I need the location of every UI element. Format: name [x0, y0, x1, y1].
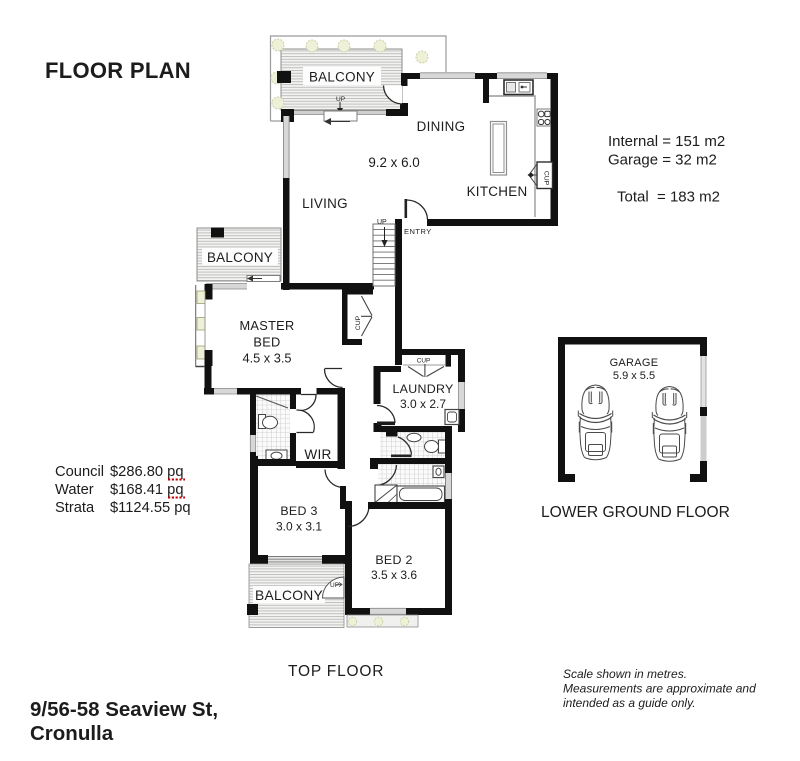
svg-text:Scale shown in metres.: Scale shown in metres. — [563, 667, 687, 681]
svg-text:9.2 x 6.0: 9.2 x 6.0 — [368, 155, 419, 170]
svg-text:CUP: CUP — [417, 358, 431, 365]
svg-text:LIVING: LIVING — [302, 196, 348, 211]
svg-text:TOP FLOOR: TOP FLOOR — [288, 663, 384, 680]
svg-text:MASTER: MASTER — [239, 318, 294, 333]
svg-text:ENTRY: ENTRY — [404, 227, 432, 236]
svg-text:UP: UP — [377, 219, 387, 226]
svg-text:BED 2: BED 2 — [375, 553, 412, 567]
svg-text:GARAGE: GARAGE — [610, 357, 659, 369]
svg-text:FLOOR PLAN: FLOOR PLAN — [45, 58, 191, 83]
svg-text:WIR: WIR — [304, 447, 331, 462]
svg-text:Garage = 32 m2: Garage = 32 m2 — [608, 152, 717, 169]
svg-text:Water$168.41 pq: Water$168.41 pq — [55, 482, 184, 498]
svg-text:3.0 x 3.1: 3.0 x 3.1 — [276, 520, 322, 534]
svg-text:KITCHEN: KITCHEN — [467, 184, 528, 199]
svg-text:UP: UP — [330, 582, 339, 589]
svg-text:Internal = 151 m2: Internal = 151 m2 — [608, 133, 725, 150]
svg-text:9/56-58 Seaview St,: 9/56-58 Seaview St, — [30, 698, 218, 721]
svg-text:3.5 x 3.6: 3.5 x 3.6 — [371, 568, 417, 582]
svg-text:Measurements are approximate a: Measurements are approximate and — [563, 682, 756, 696]
svg-text:LOWER GROUND FLOOR: LOWER GROUND FLOOR — [541, 504, 730, 521]
svg-text:BALCONY: BALCONY — [207, 250, 273, 265]
svg-text:5.9 x 5.5: 5.9 x 5.5 — [613, 370, 655, 382]
svg-text:LAUNDRY: LAUNDRY — [392, 382, 453, 396]
svg-text:3.0 x 2.7: 3.0 x 2.7 — [400, 397, 446, 411]
svg-text:Strata$1124.55 pq: Strata$1124.55 pq — [55, 500, 191, 516]
svg-text:BED 3: BED 3 — [280, 504, 317, 518]
svg-text:Total = 183 m2: Total = 183 m2 — [617, 189, 720, 206]
svg-text:BALCONY: BALCONY — [255, 588, 323, 603]
svg-text:Council$286.80 pq: Council$286.80 pq — [55, 464, 184, 480]
svg-text:UP: UP — [336, 96, 345, 103]
svg-text:BALCONY: BALCONY — [309, 70, 375, 85]
svg-text:BED: BED — [253, 335, 280, 350]
svg-text:CUP: CUP — [543, 171, 550, 186]
svg-text:DINING: DINING — [417, 119, 466, 134]
svg-text:Cronulla: Cronulla — [30, 722, 114, 745]
svg-text:4.5 x 3.5: 4.5 x 3.5 — [242, 351, 291, 366]
svg-text:CUP: CUP — [355, 315, 362, 330]
svg-text:intended as a guide only.: intended as a guide only. — [563, 696, 696, 710]
